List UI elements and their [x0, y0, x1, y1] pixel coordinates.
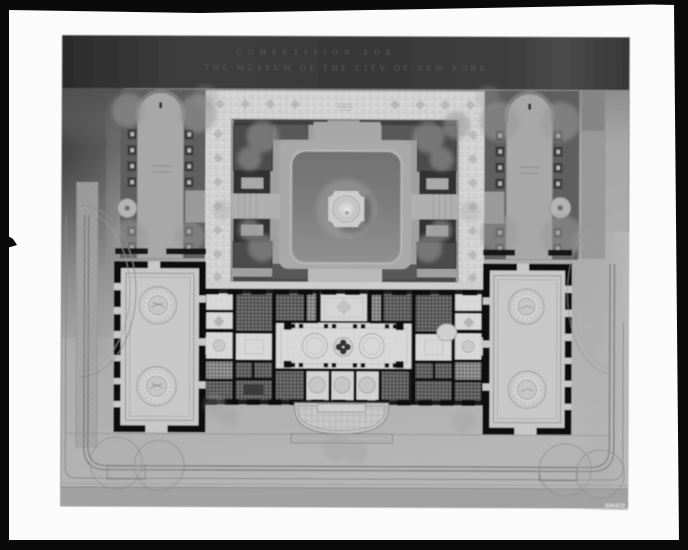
svg-text:COMPETITION FOR: COMPETITION FOR: [237, 48, 397, 58]
svg-text:506472: 506472: [605, 504, 625, 510]
svg-text:THE MUSEUM OF THE CITY OF NEW: THE MUSEUM OF THE CITY OF NEW YORK: [204, 62, 489, 73]
